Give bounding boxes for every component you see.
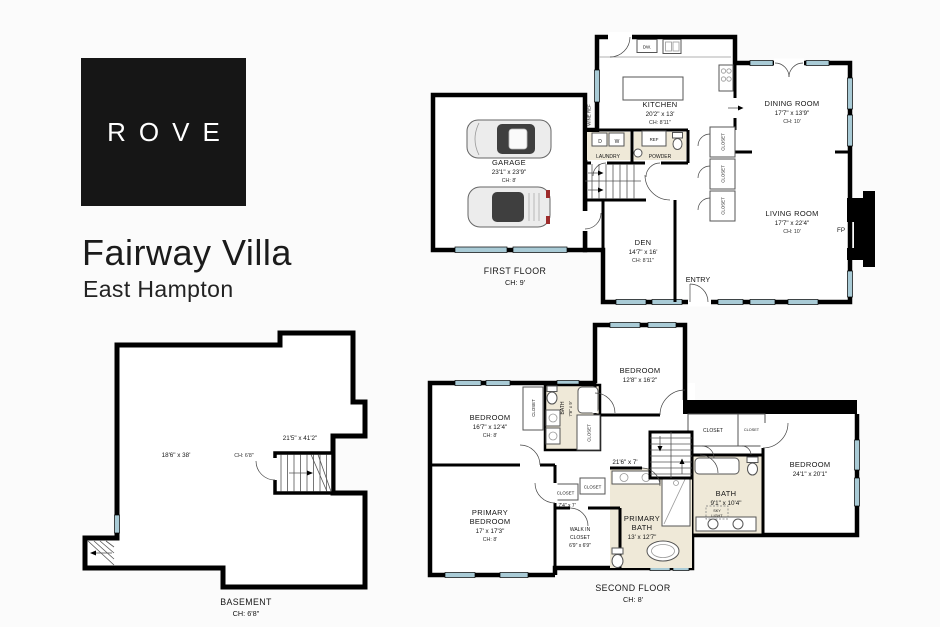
walk-in-closet-label1: WALK IN: [570, 527, 591, 533]
primary-bath-dims: 13' x 12'7": [628, 534, 657, 541]
entry-label: ENTRY: [686, 275, 711, 284]
dining-room-dims: 17'7" x 13'9": [775, 110, 810, 117]
dining-room-label: DINING ROOM: [765, 99, 820, 108]
hall-bath-label: BATH: [560, 401, 566, 414]
primary-bedroom-ch: CH: 8': [483, 537, 498, 543]
primary-bedroom-dims: 17' x 17'3": [476, 528, 505, 535]
living-room-dims: 17'7" x 22'4": [775, 220, 810, 227]
powder-toilet-icon: [673, 133, 683, 150]
first-floor-title: FIRST FLOOR: [484, 266, 546, 276]
kitchen-ch: CH: 8'11": [649, 120, 671, 126]
closet-label: CLOSET: [557, 491, 575, 496]
closet-dims: 7'4" x 7': [558, 503, 575, 509]
walk-in-closet-label2: CLOSET: [570, 535, 590, 541]
first-floor-plan: GARAGE 23'1" x 23'9" CH: 8' KITCHEN 20'2…: [420, 18, 935, 310]
dishwasher-label: DW.: [643, 45, 651, 50]
den-label: DEN: [635, 238, 652, 247]
listing-title: Fairway Villa: [82, 232, 292, 274]
hall-dims: 21'6" x 7': [612, 459, 637, 466]
ensuite-bath-label: BATH: [716, 489, 737, 498]
rove-logo-text: ROVE: [107, 117, 233, 148]
bedroom-left-label: BEDROOM: [470, 413, 511, 422]
bedroom-left-dims: 16'7" x 12'4": [473, 424, 508, 431]
bedroom-left-ch: CH: 8': [483, 433, 498, 439]
skylight-label2: LIGHT: [711, 514, 723, 518]
fireplace-label: FP: [837, 227, 845, 234]
second-floor-ceiling: CH: 8': [623, 595, 644, 604]
first-floor-ceiling: CH: 9': [505, 278, 526, 287]
basement-ceiling: CH: 6'8": [233, 609, 260, 618]
primary-bedroom-label2: BEDROOM: [470, 517, 511, 526]
primary-bath-label1: PRIMARY: [624, 514, 660, 523]
second-floor-plan: BEDROOM 12'8" x 16'2" BEDROOM 16'7" x 12…: [420, 318, 940, 613]
garage-ch: CH: 8': [502, 178, 517, 184]
dryer-label: D: [598, 139, 602, 145]
walk-in-closet-dims: 6'9" x 6'9": [569, 543, 591, 549]
closet-label: CLOSET: [721, 165, 726, 183]
primary-bath-label2: BATH: [632, 523, 653, 532]
closet-label: CLOSET: [721, 197, 726, 215]
den-dims: 14'7" x 16': [629, 249, 658, 256]
living-room-label: LIVING ROOM: [765, 209, 818, 218]
car-icon: [468, 187, 550, 227]
powder-label: POWDER: [649, 154, 672, 160]
listing-subtitle: East Hampton: [83, 276, 234, 303]
basement-stair-dims: 21'5" x 41'2": [283, 435, 318, 442]
range-icon: [719, 65, 733, 91]
primary-bedroom-label1: PRIMARY: [472, 508, 508, 517]
kitchen-sink-icon: [663, 40, 681, 54]
kitchen-label: KITCHEN: [642, 100, 677, 109]
ensuite-bath-dims: 9'1" x 10'4": [710, 500, 741, 507]
second-floor-stairs: [650, 432, 692, 478]
thick-wall: [683, 400, 857, 414]
powder-sink-icon: [634, 149, 642, 157]
kitchen-dims: 20'2" x 13': [646, 111, 675, 118]
bedroom-right-label: BEDROOM: [790, 460, 831, 469]
garage-dims: 23'1" x 23'9": [492, 169, 527, 176]
closet-label: CLOSET: [584, 485, 602, 490]
laundry-label: LAUNDRY: [596, 154, 620, 160]
den-ch: CH: 8'11": [632, 258, 654, 264]
closet-label: CLOSET: [703, 428, 723, 434]
car-icon: [467, 120, 551, 158]
dining-room-ch: CH: 10': [783, 119, 801, 125]
basement-main-ch: CH: 6'8": [234, 453, 253, 459]
basement-main-dims: 18'6" x 38': [162, 452, 191, 459]
bedroom-right-dims: 24'1" x 20'1": [793, 471, 828, 478]
closet-label: CLOSET: [744, 428, 760, 432]
kitchen-island: [623, 77, 683, 100]
closet-label: CLOSET: [587, 424, 592, 442]
washer-label: W: [615, 139, 620, 145]
closet-label: CLOSET: [531, 399, 536, 417]
hall-bath-dims: 7'8" x 9': [568, 401, 573, 416]
second-floor-title: SECOND FLOOR: [595, 583, 670, 593]
bedroom-top-label: BEDROOM: [620, 366, 661, 375]
closet-label: CLOSET: [721, 133, 726, 151]
basement-plan: 18'6" x 38' CH: 6'8" 21'5" x 41'2" BASEM…: [75, 330, 385, 622]
rove-logo: ROVE: [81, 58, 246, 206]
garage-label: GARAGE: [492, 158, 526, 167]
basement-title: BASEMENT: [220, 597, 272, 607]
living-room-ch: CH: 10': [783, 229, 801, 235]
bedroom-top-dims: 12'8" x 16'2": [623, 377, 658, 384]
skylight-label: SKY: [713, 509, 721, 513]
wine-ref-label: WINE REF: [587, 104, 592, 126]
fridge-label: REF: [650, 137, 659, 142]
